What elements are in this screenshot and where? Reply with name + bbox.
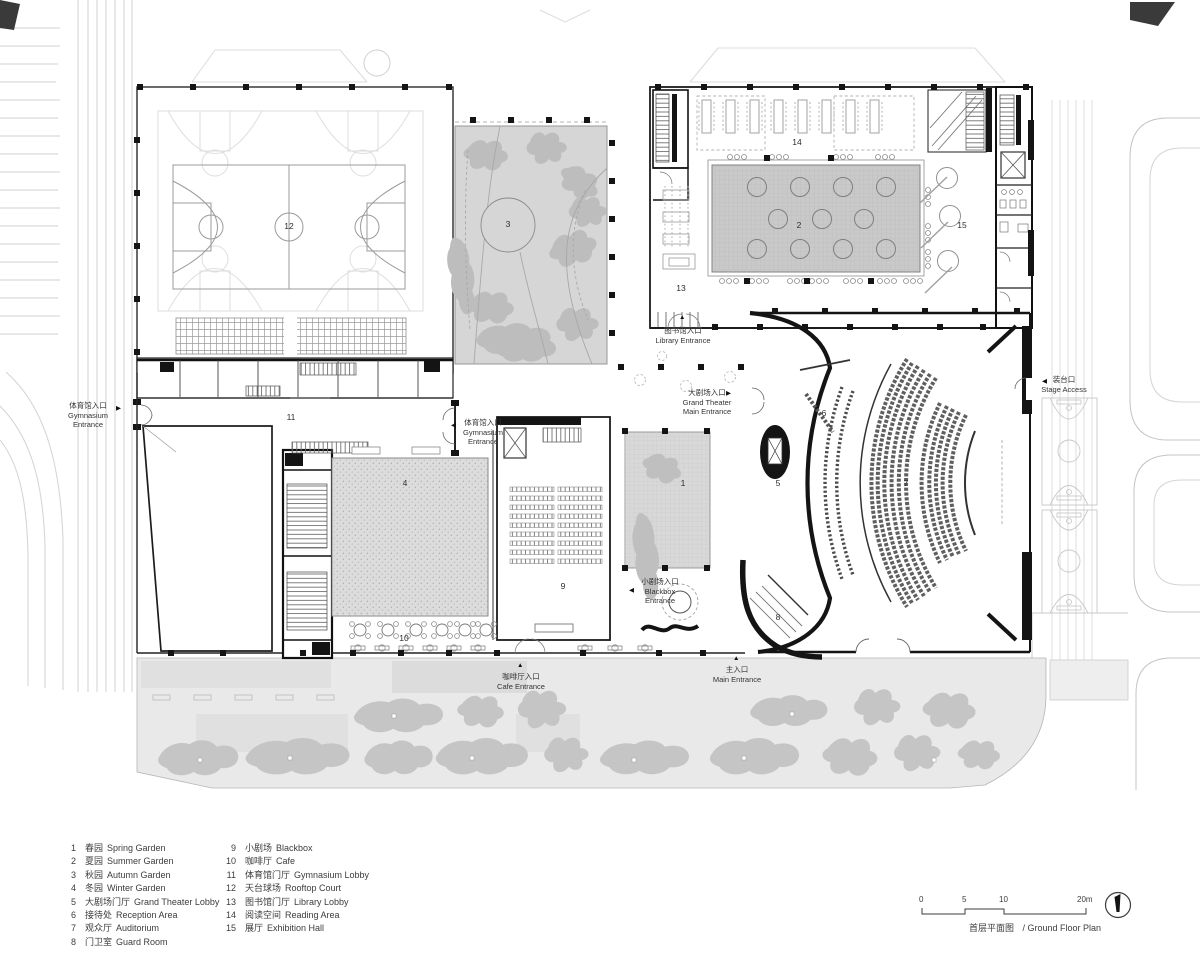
scale-tick-20m: 20m <box>1077 895 1093 904</box>
sheet-title-zh: 首层平面图 <box>969 923 1014 933</box>
main-entrance-arrow-icon: ▲ <box>733 656 739 663</box>
grand-theater-entrance-arrow-icon: ▶ <box>726 391 731 398</box>
room-label-reading-area: 14 <box>792 137 801 147</box>
grand-theater-entrance-label: 大剧场入口Grand TheaterMain Entrance <box>683 388 732 417</box>
library-block <box>650 84 1034 330</box>
theater-curved-wall <box>750 313 830 652</box>
scale-bar <box>922 908 1086 914</box>
guard-room <box>743 560 822 657</box>
room-label-winter-garden: 4 <box>403 478 408 488</box>
room-label-cafe: 10 <box>399 633 408 643</box>
room-label-library-lobby: 13 <box>676 283 685 293</box>
room-label-autumn-garden: 3 <box>506 219 511 229</box>
sheet-title: 首层平面图 / Ground Floor Plan <box>940 921 1130 934</box>
stage-access-arrow-icon: ◀ <box>1042 379 1047 386</box>
legend-item: 9小剧场Blackbox <box>222 842 369 855</box>
library-entrance-arrow-icon: ▲ <box>679 315 685 322</box>
legend-column-left: 1春园Spring Garden 2夏园Summer Garden 3秋园Aut… <box>62 842 222 949</box>
grand-theater-block <box>740 308 1036 657</box>
sheet-title-en: / Ground Floor Plan <box>1022 923 1101 933</box>
legend-item: 1春园Spring Garden <box>62 842 222 855</box>
scale-tick-5: 5 <box>962 895 966 904</box>
gym-entrance-mid-label: 体育馆入口GymnasiumEntrance <box>463 418 503 447</box>
gym-entrance-west-arrow-icon: ▶ <box>116 406 121 413</box>
room-label-spring-garden: 1 <box>681 478 686 488</box>
library-entrance-label: 图书馆入口Library Entrance <box>655 326 710 345</box>
legend-column-right: 9小剧场Blackbox 10咖啡厅Cafe 11体育馆门厅Gymnasium … <box>222 842 369 949</box>
main-entrance-label: 主入口Main Entrance <box>713 665 761 684</box>
legend-item: 5大剧场门厅Grand Theater Lobby <box>62 896 222 909</box>
scale-tick-0: 0 <box>919 895 923 904</box>
legend-item: 4冬园Winter Garden <box>62 882 222 895</box>
library-service-wing <box>996 87 1034 328</box>
blackbox-entrance-label: 小剧场入口BlackboxEntrance <box>641 577 679 606</box>
legend: 1春园Spring Garden 2夏园Summer Garden 3秋园Aut… <box>62 842 369 949</box>
service-core-west <box>283 450 332 658</box>
outdoor-courts <box>1042 398 1097 613</box>
cafe-entrance-arrow-icon: ▲ <box>517 663 523 670</box>
summer-garden <box>708 155 931 285</box>
legend-item: 14阅读空间Reading Area <box>222 909 369 922</box>
legend-item: 13图书馆门厅Library Lobby <box>222 896 369 909</box>
room-label-exhibition-hall: 15 <box>957 220 966 230</box>
ground-floor-plan-sheet: 1 2 3 4 5 6 7 8 9 10 11 12 13 14 15 体育馆入… <box>0 0 1200 970</box>
legend-item: 10咖啡厅Cafe <box>222 855 369 868</box>
room-label-guard-room: 8 <box>776 612 781 622</box>
blackbox-entrance-arrow-icon: ◀ <box>629 588 634 595</box>
stage-access-label: 装台口Stage Access <box>1041 375 1086 394</box>
legend-item: 7观众厅Auditorium <box>62 922 222 935</box>
legend-item: 2夏园Summer Garden <box>62 855 222 868</box>
legend-item: 12天台球场Rooftop Court <box>222 882 369 895</box>
auditorium-seats-front <box>922 403 966 563</box>
legend-item: 6接待处Reception Area <box>62 909 222 922</box>
gymnasium-block <box>133 84 453 430</box>
legend-item: 3秋园Autumn Garden <box>62 869 222 882</box>
winter-garden <box>332 447 488 616</box>
room-label-gym-lobby: 11 <box>287 412 296 422</box>
room-label-summer-garden: 2 <box>797 220 802 230</box>
hall-west <box>143 426 272 651</box>
room-label-reception: 6 <box>822 408 827 418</box>
blackbox-theater <box>497 417 610 640</box>
floor-plan-drawing <box>0 0 1200 970</box>
legend-item: 15展厅Exhibition Hall <box>222 922 369 935</box>
legend-item: 8门卫室Guard Room <box>62 936 222 949</box>
courtyard <box>618 352 744 392</box>
north-arrow-icon <box>1106 893 1131 918</box>
entry-plaza <box>137 658 1128 788</box>
gym-entrance-mid-arrow-icon: ◀ <box>451 423 456 430</box>
room-label-grand-theater-lobby: 5 <box>776 478 781 488</box>
library-stair-topright <box>928 88 992 152</box>
autumn-garden <box>444 117 615 364</box>
room-label-rooftop-court: 12 <box>284 221 293 231</box>
room-label-blackbox: 9 <box>561 581 566 591</box>
cafe-entrance-label: 咖啡厅入口Cafe Entrance <box>497 672 545 691</box>
legend-item: 11体育馆门厅Gymnasium Lobby <box>222 869 369 882</box>
room-label-auditorium: 7 <box>904 478 909 488</box>
scale-tick-10: 10 <box>999 895 1008 904</box>
gym-service-band <box>137 358 453 398</box>
lobby-elevator-island <box>760 425 790 479</box>
gym-entrance-west-label: 体育馆入口GymnasiumEntrance <box>68 401 108 430</box>
